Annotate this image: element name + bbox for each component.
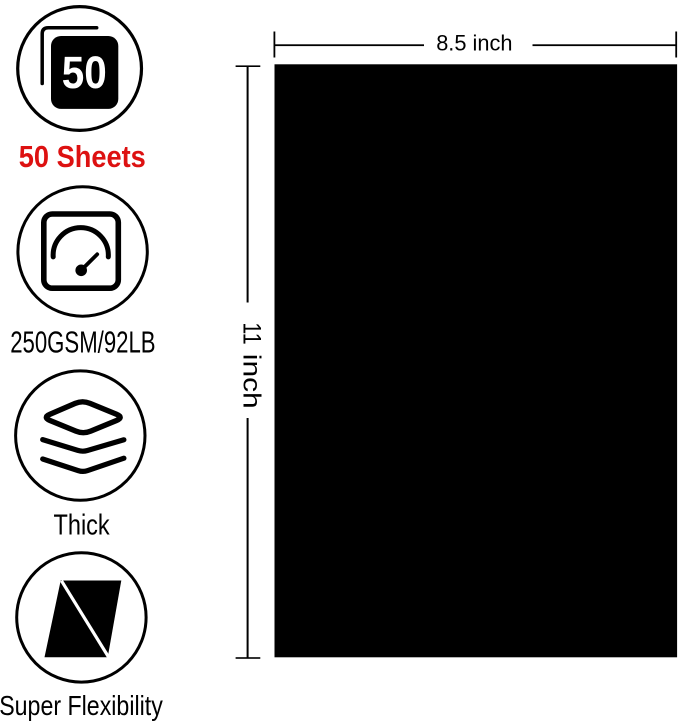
svg-text:50: 50 xyxy=(62,47,107,98)
svg-text:50 Sheets: 50 Sheets xyxy=(19,139,146,174)
svg-text:Thick: Thick xyxy=(54,510,111,542)
svg-text:11: 11 xyxy=(238,322,266,344)
svg-text:250GSM/92LB: 250GSM/92LB xyxy=(10,324,155,359)
svg-text:8.5 inch: 8.5 inch xyxy=(436,30,512,55)
svg-text:Super Flexibility: Super Flexibility xyxy=(0,690,163,721)
svg-text:inch: inch xyxy=(238,354,266,409)
